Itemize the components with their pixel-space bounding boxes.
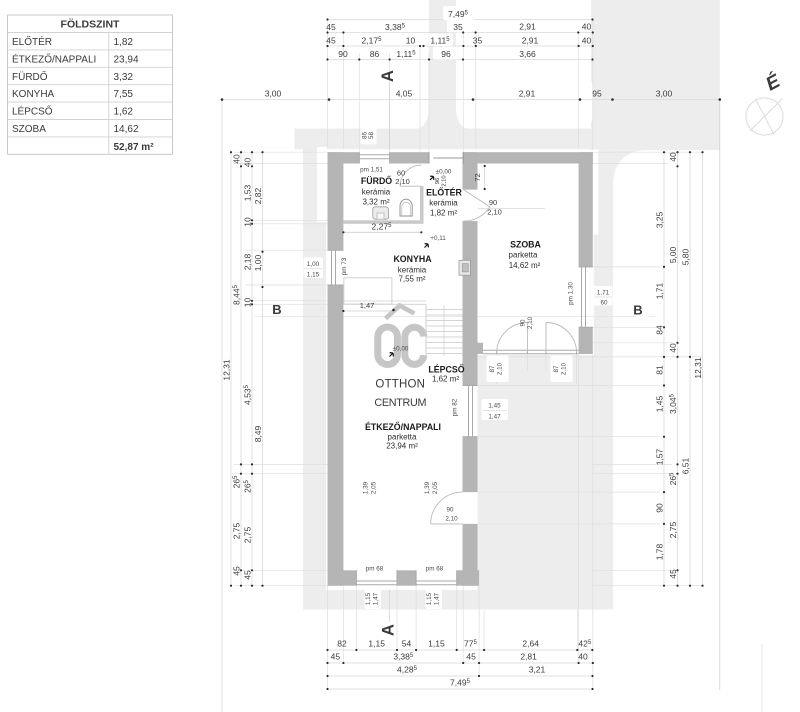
svg-text:96: 96 xyxy=(441,49,451,59)
svg-text:3,25: 3,25 xyxy=(655,211,665,228)
svg-text:2,10: 2,10 xyxy=(527,316,534,329)
svg-text:10: 10 xyxy=(406,36,416,46)
svg-text:kerámia: kerámia xyxy=(429,199,458,208)
svg-text:1,47: 1,47 xyxy=(360,301,375,310)
svg-text:4,05: 4,05 xyxy=(396,89,413,99)
svg-text:2,82: 2,82 xyxy=(253,187,263,204)
svg-text:40: 40 xyxy=(668,343,678,353)
svg-text:LÉPCSŐ: LÉPCSŐ xyxy=(12,104,53,118)
svg-text:45: 45 xyxy=(326,36,336,46)
svg-text:2,91: 2,91 xyxy=(522,36,539,46)
svg-text:45: 45 xyxy=(466,652,476,662)
svg-text:SZOBA: SZOBA xyxy=(12,124,46,135)
svg-text:86: 86 xyxy=(370,49,380,59)
svg-text:1,62: 1,62 xyxy=(114,107,134,118)
svg-text:5,80: 5,80 xyxy=(681,248,691,265)
svg-text:35: 35 xyxy=(473,36,483,46)
svg-text:1,47: 1,47 xyxy=(373,592,380,605)
svg-text:82: 82 xyxy=(337,639,347,649)
svg-text:10: 10 xyxy=(243,217,253,227)
svg-text:2,75: 2,75 xyxy=(232,522,242,539)
svg-text:2,75: 2,75 xyxy=(243,526,253,543)
svg-text:2,75: 2,75 xyxy=(668,521,678,538)
svg-text:1,15: 1,15 xyxy=(368,639,385,649)
svg-text:+0,11: +0,11 xyxy=(430,235,446,242)
svg-text:14,62: 14,62 xyxy=(114,124,139,135)
svg-text:2,05: 2,05 xyxy=(371,481,378,494)
svg-text:40: 40 xyxy=(243,158,253,168)
svg-text:parketta: parketta xyxy=(509,251,538,260)
svg-text:52,87 m²: 52,87 m² xyxy=(114,142,155,153)
svg-text:LÉPCSŐ: LÉPCSŐ xyxy=(428,364,464,375)
svg-text:ELŐTÉR: ELŐTÉR xyxy=(426,187,462,198)
svg-text:kerámia: kerámia xyxy=(398,266,427,275)
svg-text:2,91: 2,91 xyxy=(519,22,536,32)
svg-text:1,15: 1,15 xyxy=(307,272,320,279)
svg-text:1,15: 1,15 xyxy=(426,592,433,605)
svg-text:90: 90 xyxy=(489,198,497,207)
svg-text:6,51: 6,51 xyxy=(681,457,691,474)
svg-text:1,57: 1,57 xyxy=(655,448,665,465)
svg-text:3,21: 3,21 xyxy=(529,665,546,675)
svg-text:87: 87 xyxy=(489,365,496,373)
svg-text:1,45: 1,45 xyxy=(655,395,665,412)
svg-text:2,64: 2,64 xyxy=(522,639,539,649)
svg-text:45: 45 xyxy=(326,22,336,32)
svg-text:2,81: 2,81 xyxy=(520,652,537,662)
svg-text:23,94 m²: 23,94 m² xyxy=(386,442,418,451)
svg-text:12,31: 12,31 xyxy=(693,357,703,379)
svg-text:72: 72 xyxy=(473,173,482,181)
svg-text:±0,00: ±0,00 xyxy=(436,169,452,176)
svg-text:A: A xyxy=(379,624,397,636)
svg-text:1,00: 1,00 xyxy=(307,261,320,268)
svg-text:±0,00: ±0,00 xyxy=(393,346,409,353)
svg-text:3,32 m²: 3,32 m² xyxy=(362,198,389,207)
svg-text:90: 90 xyxy=(655,503,665,513)
svg-text:2,10: 2,10 xyxy=(497,362,504,375)
svg-text:CENTRUM: CENTRUM xyxy=(374,397,426,409)
svg-text:1,78: 1,78 xyxy=(655,543,665,560)
svg-text:pm 1,51: pm 1,51 xyxy=(360,167,383,174)
svg-text:90: 90 xyxy=(446,507,454,514)
svg-text:KONYHA: KONYHA xyxy=(393,254,432,264)
svg-text:2,10: 2,10 xyxy=(445,516,458,523)
svg-text:45: 45 xyxy=(243,570,253,580)
svg-text:1,71: 1,71 xyxy=(597,290,610,297)
svg-text:pm 1,30: pm 1,30 xyxy=(568,282,575,305)
svg-text:FÜRDŐ: FÜRDŐ xyxy=(361,175,392,186)
svg-text:2,10: 2,10 xyxy=(487,208,502,217)
svg-text:14,62 m²: 14,62 m² xyxy=(509,261,541,270)
svg-text:45: 45 xyxy=(232,566,242,576)
svg-text:96: 96 xyxy=(435,178,441,184)
svg-text:84: 84 xyxy=(655,325,665,335)
svg-text:23,94: 23,94 xyxy=(114,54,139,65)
svg-text:1,82 m²: 1,82 m² xyxy=(430,209,457,218)
svg-text:87: 87 xyxy=(553,365,560,373)
svg-text:40: 40 xyxy=(578,652,588,662)
svg-text:3,32: 3,32 xyxy=(114,72,134,83)
svg-text:pm 68: pm 68 xyxy=(366,566,384,573)
svg-text:2,10: 2,10 xyxy=(442,175,448,186)
svg-text:40: 40 xyxy=(582,36,592,46)
svg-text:1,45: 1,45 xyxy=(488,403,501,410)
svg-text:58: 58 xyxy=(368,132,375,140)
svg-text:1,62 m²: 1,62 m² xyxy=(432,375,459,384)
svg-text:35: 35 xyxy=(453,22,463,32)
svg-text:A: A xyxy=(379,70,397,82)
svg-text:2,18: 2,18 xyxy=(243,253,253,270)
svg-text:2,10: 2,10 xyxy=(395,177,410,186)
svg-text:FÜRDŐ: FÜRDŐ xyxy=(12,69,48,83)
svg-text:90: 90 xyxy=(338,49,348,59)
svg-text:2,91: 2,91 xyxy=(519,89,536,99)
svg-text:1,47: 1,47 xyxy=(434,592,441,605)
svg-text:95: 95 xyxy=(592,89,602,99)
svg-text:45: 45 xyxy=(331,652,341,662)
svg-text:SZOBA: SZOBA xyxy=(510,240,541,250)
svg-text:45: 45 xyxy=(668,569,678,579)
svg-text:parketta: parketta xyxy=(388,433,417,442)
svg-text:kerámia: kerámia xyxy=(362,188,391,197)
svg-text:1,39: 1,39 xyxy=(424,481,431,494)
svg-text:3,00: 3,00 xyxy=(656,89,673,99)
svg-text:1,47: 1,47 xyxy=(488,414,501,421)
svg-text:ÉTKEZŐ/NAPPALI: ÉTKEZŐ/NAPPALI xyxy=(365,421,441,432)
svg-text:12,31: 12,31 xyxy=(222,359,232,381)
svg-text:2,05: 2,05 xyxy=(432,481,439,494)
svg-text:7,55: 7,55 xyxy=(114,89,134,100)
svg-text:B: B xyxy=(633,303,642,318)
svg-text:1,82: 1,82 xyxy=(114,37,134,48)
svg-text:ELŐTÉR: ELŐTÉR xyxy=(12,34,52,48)
svg-text:1,15: 1,15 xyxy=(365,592,372,605)
svg-text:3,66: 3,66 xyxy=(519,49,536,59)
svg-text:10: 10 xyxy=(243,298,253,308)
svg-text:54: 54 xyxy=(402,639,412,649)
svg-text:1,39: 1,39 xyxy=(363,481,370,494)
svg-text:60: 60 xyxy=(600,300,608,307)
svg-text:KONYHA: KONYHA xyxy=(12,89,55,100)
svg-text:pm 73: pm 73 xyxy=(341,257,348,275)
svg-text:81: 81 xyxy=(655,365,665,375)
svg-text:40: 40 xyxy=(582,22,592,32)
svg-text:7,55 m²: 7,55 m² xyxy=(398,275,425,284)
svg-text:40: 40 xyxy=(668,152,678,162)
svg-text:90: 90 xyxy=(520,319,527,327)
svg-text:8,49: 8,49 xyxy=(253,425,263,442)
svg-text:FÖLDSZINT: FÖLDSZINT xyxy=(61,18,120,31)
svg-text:1,71: 1,71 xyxy=(655,282,665,299)
svg-text:1,53: 1,53 xyxy=(243,184,253,201)
svg-text:ÉTKEZŐ/NAPPALI: ÉTKEZŐ/NAPPALI xyxy=(12,51,96,65)
svg-text:3,00: 3,00 xyxy=(265,89,282,99)
svg-text:5,00: 5,00 xyxy=(668,246,678,263)
svg-text:1,00: 1,00 xyxy=(253,254,263,271)
svg-text:2,10: 2,10 xyxy=(561,362,568,375)
svg-text:B: B xyxy=(272,302,281,317)
svg-text:40: 40 xyxy=(232,154,242,164)
svg-text:OTTHON: OTTHON xyxy=(375,379,425,391)
svg-text:pm 68: pm 68 xyxy=(426,566,444,573)
svg-text:pm 82: pm 82 xyxy=(452,398,459,416)
svg-text:1,15: 1,15 xyxy=(428,639,445,649)
